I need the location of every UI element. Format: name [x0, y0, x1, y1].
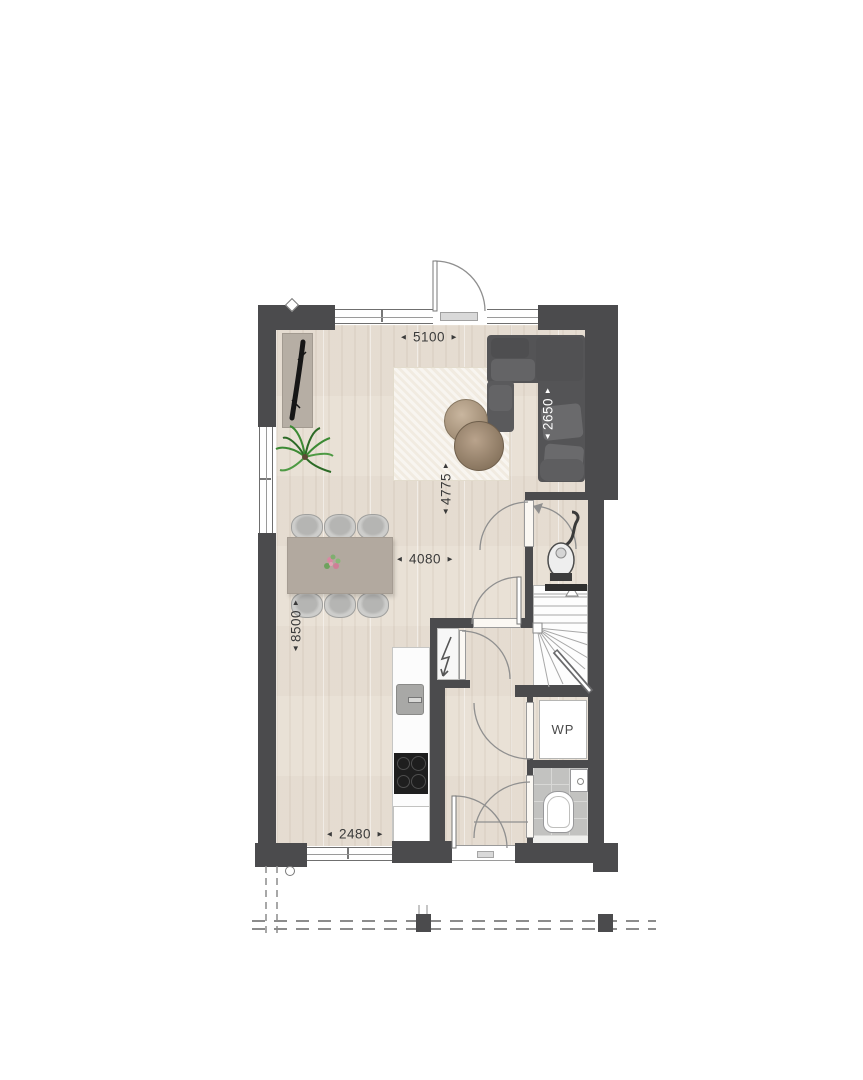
- dimension-depth-left: ▲ 8500 ▼: [289, 599, 304, 653]
- back-door-threshold: [477, 851, 494, 858]
- basin-tap: [577, 778, 584, 785]
- door-opening-wp-closet: [526, 702, 534, 759]
- wall-segment: [515, 843, 618, 863]
- sofa-seat-cushion: [491, 359, 535, 381]
- arrow-right-icon: ►: [376, 830, 384, 838]
- window: [307, 847, 392, 861]
- survey-marker-circle: [285, 866, 295, 876]
- dimension-value: 5100: [413, 330, 445, 345]
- floor-plan: WP: [0, 0, 863, 1080]
- toilet-room-floor-edge: [533, 836, 588, 843]
- burner: [397, 757, 410, 770]
- dimension-value: 4080: [409, 552, 441, 567]
- garden-door-threshold: [440, 312, 478, 321]
- door-opening-hall-living: [524, 500, 534, 547]
- wall-segment: [533, 760, 588, 768]
- wall-segment: [593, 863, 618, 872]
- meter-cupboard-door: [459, 630, 466, 680]
- dining-chair: [357, 592, 389, 618]
- arrow-up-icon: ▲: [442, 462, 450, 470]
- burner: [411, 756, 426, 771]
- boundary-post: [598, 914, 613, 932]
- sofa-corner-cushion: [536, 337, 583, 381]
- dimension-value: 8500: [289, 610, 304, 642]
- sink-faucet: [408, 697, 422, 703]
- dining-chair: [324, 592, 356, 618]
- wall-segment: [430, 688, 445, 843]
- wall-segment: [255, 843, 307, 867]
- coffee-table-large: [454, 421, 504, 471]
- burner: [397, 775, 410, 788]
- dining-table: [287, 537, 393, 594]
- burner: [411, 774, 426, 789]
- kitchen-sink: [396, 684, 424, 715]
- dimension-width-top: ◄ 5100 ►: [400, 330, 459, 345]
- wall-segment: [533, 492, 588, 500]
- cooktop: [394, 753, 428, 794]
- sofa-back-pillow: [491, 338, 529, 358]
- staircase: [533, 585, 588, 687]
- heat-pump-label: WP: [552, 722, 575, 737]
- arrow-down-icon: ▼: [292, 645, 300, 653]
- wall-segment: [585, 330, 618, 500]
- sofa: [487, 335, 585, 482]
- arrow-up-icon: ▲: [292, 599, 300, 607]
- wall-segment: [538, 305, 618, 330]
- wall-segment: [430, 680, 470, 688]
- arrow-up-icon: ▲: [544, 387, 552, 395]
- sofa-armrest: [540, 459, 584, 481]
- wall-segment: [258, 533, 276, 843]
- dimension-depth-living: ▲ 4775 ▼: [439, 462, 454, 516]
- hand-basin: [570, 769, 588, 792]
- boundary-dashed-lines: [252, 866, 656, 934]
- sofa-chaise-pillow: [489, 385, 512, 411]
- toilet-bowl: [547, 796, 570, 828]
- arrow-left-icon: ◄: [400, 333, 408, 341]
- tv-cabinet: [282, 333, 313, 428]
- arrow-left-icon: ◄: [326, 830, 334, 838]
- meter-cupboard: [437, 628, 459, 680]
- dimension-depth-sofa: ▲ 2650 ▼: [541, 387, 556, 441]
- arrow-down-icon: ▼: [442, 508, 450, 516]
- toilet: [543, 791, 574, 833]
- window-mullion: [381, 310, 383, 322]
- dimension-width-mid: ◄ 4080 ►: [396, 552, 455, 567]
- heat-pump-unit: WP: [539, 700, 587, 759]
- window: [259, 427, 273, 533]
- wall-segment: [588, 500, 604, 843]
- arrow-left-icon: ◄: [396, 555, 404, 563]
- dimension-value: 2480: [339, 827, 371, 842]
- door-opening-hall-dining: [473, 618, 521, 628]
- wall-segment: [258, 305, 335, 330]
- arrow-right-icon: ►: [446, 555, 454, 563]
- dimension-width-kitchen: ◄ 2480 ►: [326, 827, 385, 842]
- window: [335, 309, 433, 324]
- base-cabinet: [393, 806, 430, 842]
- dimension-value: 4775: [439, 473, 454, 505]
- wall-segment: [515, 685, 588, 697]
- arrow-down-icon: ▼: [544, 433, 552, 441]
- dimension-value: 2650: [541, 398, 556, 430]
- door-opening-toilet: [526, 775, 534, 838]
- window-mullion: [347, 848, 349, 859]
- wall-segment: [392, 841, 452, 863]
- window: [487, 309, 538, 324]
- boundary-post: [416, 914, 431, 932]
- wall-segment: [430, 628, 437, 688]
- arrow-right-icon: ►: [450, 333, 458, 341]
- wall-segment: [258, 330, 276, 427]
- window-mullion: [260, 478, 271, 480]
